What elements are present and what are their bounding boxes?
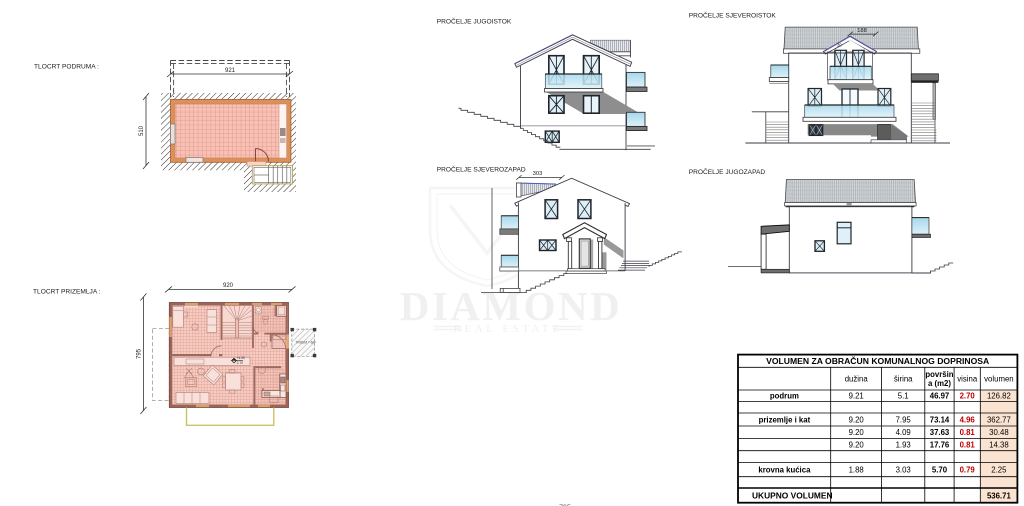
svg-text:TLOCRT PRIZEMLJA :: TLOCRT PRIZEMLJA : <box>33 289 101 296</box>
svg-text:širina: širina <box>894 375 913 384</box>
svg-text:0.79: 0.79 <box>960 466 976 475</box>
svg-text:5.1: 5.1 <box>898 392 909 401</box>
svg-text:TRIJEM = 6m²: TRIJEM = 6m² <box>296 341 317 345</box>
svg-text:14.38: 14.38 <box>989 441 1009 450</box>
svg-text:UKUPNO VOLUMEN: UKUPNO VOLUMEN <box>752 490 833 500</box>
svg-text:30.48: 30.48 <box>989 428 1009 437</box>
svg-text:37.63: 37.63 <box>930 428 950 437</box>
svg-text:PROČELJE JUGOZAPAD: PROČELJE JUGOZAPAD <box>689 167 766 176</box>
svg-text:1.88: 1.88 <box>849 466 864 475</box>
svg-text:510: 510 <box>139 125 145 136</box>
svg-text:dužina: dužina <box>845 375 869 384</box>
svg-text:9.21: 9.21 <box>849 392 864 401</box>
svg-text:0.81: 0.81 <box>960 441 976 450</box>
svg-text:536.71: 536.71 <box>987 491 1012 500</box>
svg-text:126.82: 126.82 <box>987 392 1011 401</box>
svg-text:visina: visina <box>957 375 978 384</box>
svg-text:površin: površin <box>925 370 953 379</box>
svg-text:9.20: 9.20 <box>849 428 865 437</box>
svg-text:1.93: 1.93 <box>896 441 911 450</box>
svg-text:prizemlje i kat: prizemlje i kat <box>759 416 811 425</box>
svg-text:TLOCRT PODRUMA :: TLOCRT PODRUMA : <box>34 64 99 71</box>
svg-text:2.70: 2.70 <box>960 392 976 401</box>
svg-text:795: 795 <box>136 348 142 359</box>
svg-text:4.09: 4.09 <box>896 428 911 437</box>
svg-text:PROČELJE JUGOISTOK: PROČELJE JUGOISTOK <box>437 17 512 26</box>
svg-text:PROČELJE SJEVEROZAPAD: PROČELJE SJEVEROZAPAD <box>437 165 526 174</box>
svg-text:73.14: 73.14 <box>930 416 950 425</box>
svg-text:920: 920 <box>223 283 234 289</box>
svg-text:krovna kućica: krovna kućica <box>758 466 811 475</box>
svg-text:+4.50: +4.50 <box>237 356 246 360</box>
svg-text:4.96: 4.96 <box>960 416 976 425</box>
svg-text:volumen: volumen <box>984 375 1013 384</box>
svg-text:2.25: 2.25 <box>991 466 1007 475</box>
svg-text:3.03: 3.03 <box>896 466 911 475</box>
svg-text:362.77: 362.77 <box>987 416 1011 425</box>
svg-text:0.81: 0.81 <box>960 428 976 437</box>
svg-text:46.97: 46.97 <box>930 392 950 401</box>
svg-text:podrum: podrum <box>770 392 799 401</box>
svg-text:921: 921 <box>225 68 236 74</box>
svg-text:9.20: 9.20 <box>849 441 865 450</box>
svg-text:7.95: 7.95 <box>896 416 912 425</box>
svg-text:PROČELJE SJEVEROISTOK: PROČELJE SJEVEROISTOK <box>689 11 777 20</box>
svg-text:9.20: 9.20 <box>849 416 865 425</box>
svg-text:a (m2): a (m2) <box>928 379 951 388</box>
svg-text:VOLUMEN ZA OBRAČUN KOMUNALNOG: VOLUMEN ZA OBRAČUN KOMUNALNOG DOPRINOSA <box>766 355 989 366</box>
svg-text:REAL ESTATE: REAL ESTATE <box>454 323 562 335</box>
svg-text:5.70: 5.70 <box>932 466 948 475</box>
svg-text:188: 188 <box>857 28 867 34</box>
svg-text:17.76: 17.76 <box>930 441 950 450</box>
svg-text:303: 303 <box>533 171 543 177</box>
svg-text:2.70: 2.70 <box>237 361 244 365</box>
